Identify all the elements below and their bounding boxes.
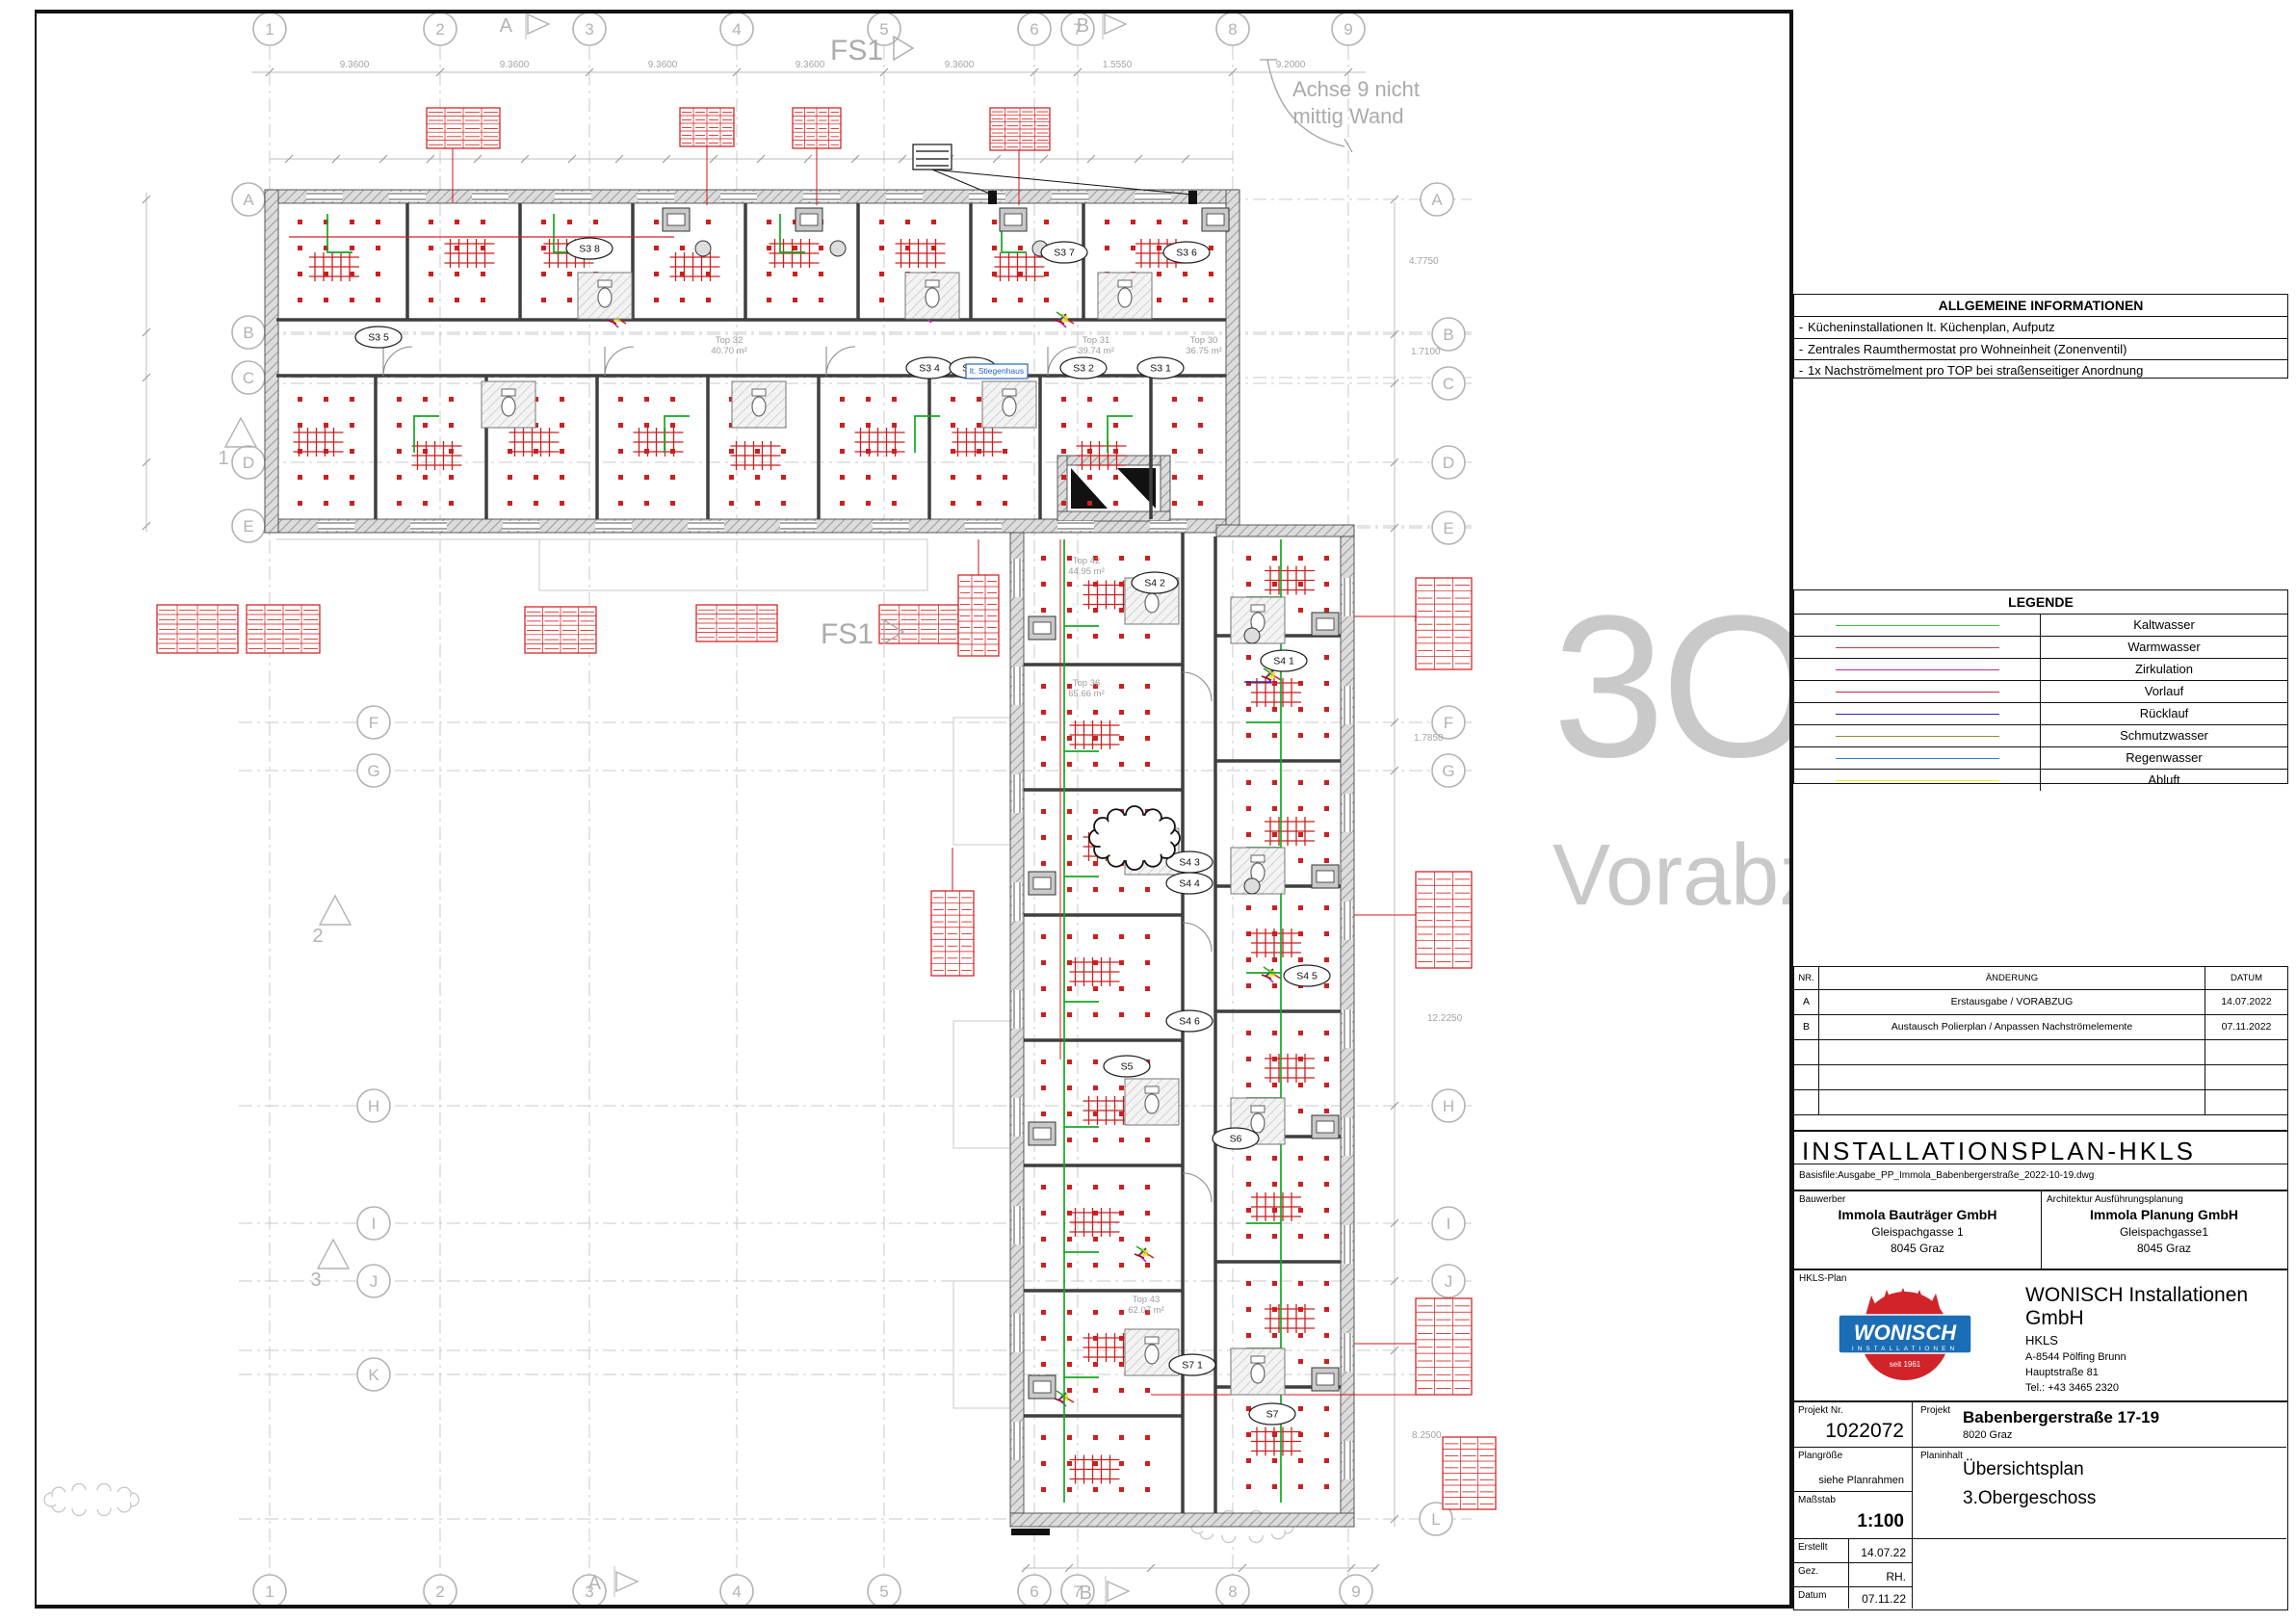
svg-text:J: J [370,1272,378,1291]
svg-text:8.2500: 8.2500 [1412,1430,1442,1441]
legend-row: Zirkulation [1794,659,2287,681]
legend-row: Regenwasser [1794,747,2287,770]
hkls-address2: Hauptstraße 81 [2025,1367,2287,1378]
general-info-box: ALLGEMEINE INFORMATIONEN -Kücheninstalla… [1793,294,2288,379]
svg-text:B: B [1077,15,1089,37]
legend-color-line [1836,780,1999,781]
svg-text:1.7100: 1.7100 [1411,347,1441,357]
revision-row [1794,1040,2287,1065]
gez-label-cell: Gez. [1794,1563,1849,1587]
bauwerber-cell: Bauwerber Immola Bauträger GmbH Gleispac… [1794,1191,2042,1269]
svg-text:D: D [243,454,254,472]
legend-label: Schmutzwasser [2041,725,2287,746]
legend-label: Warmwasser [2041,637,2287,658]
legend-title: LEGENDE [1794,590,2287,615]
svg-text:8: 8 [1228,1583,1237,1601]
svg-text:9.3600: 9.3600 [340,60,370,70]
hkls-address1: A-8544 Pölfing Brunn [2025,1351,2287,1363]
legend-label: Abluft [2041,770,2287,791]
svg-text:S7: S7 [1266,1409,1279,1421]
svg-text:A: A [243,191,254,209]
svg-text:S4 2: S4 2 [1144,578,1165,589]
hkls-company-name: WONISCH Installationen GmbH [2025,1284,2287,1330]
svg-text:S4 5: S4 5 [1296,971,1318,982]
legend-color-line [1836,736,1999,737]
svg-text:S6: S6 [1230,1134,1242,1145]
svg-text:Top 32: Top 32 [716,335,744,346]
svg-text:9.3600: 9.3600 [796,60,825,70]
massstab-value: 1:100 [1857,1511,1904,1532]
svg-text:F: F [1444,714,1453,732]
hkls-department: HKLS [2025,1333,2287,1347]
svg-text:S4 4: S4 4 [1179,878,1200,890]
revision-row: AErstausgabe / VORABZUG14.07.2022 [1794,990,2287,1015]
svg-text:A: A [1431,191,1443,209]
general-info-item: -Kücheninstallationen lt. Küchenplan, Au… [1794,317,2287,339]
legend-row: Kaltwasser [1794,615,2287,637]
legend-label: Zirkulation [2041,659,2287,680]
svg-text:S4 1: S4 1 [1273,656,1294,667]
svg-text:K: K [368,1366,379,1384]
projekt-nr-value: 1022072 [1825,1420,1904,1443]
svg-text:G: G [367,762,379,780]
legend-color-line [1836,647,1999,648]
basisfile-note: Basisfile:Ausgabe_PP_Immola_Babenbergers… [1794,1164,2287,1187]
erstellt-value-cell: 14.07.22 [1849,1539,1913,1563]
svg-text:E: E [1443,519,1453,537]
svg-text:WONISCH: WONISCH [1854,1321,1957,1345]
bauwerber-city: 8045 Graz [1794,1242,2041,1255]
svg-text:9: 9 [1351,1583,1360,1601]
plangroesse-value: siehe Planrahmen [1818,1475,1904,1486]
svg-text:S3 2: S3 2 [1073,363,1094,375]
svg-text:C: C [1443,375,1454,393]
svg-text:FS1: FS1 [821,618,874,650]
gez-value: RH. [1886,1570,1906,1583]
svg-text:S7 1: S7 1 [1182,1360,1203,1372]
svg-text:Top 36: Top 36 [1073,678,1101,689]
svg-text:G: G [1442,762,1454,780]
legend-color-line [1836,714,1999,715]
svg-text:Achse 9 nicht: Achse 9 nicht [1292,77,1420,101]
bauwerber-name: Immola Bauträger GmbH [1794,1207,2041,1222]
svg-text:I: I [1447,1215,1451,1233]
wonisch-logo-icon: WONISCH INSTALLATIONEN seit 1961 [1813,1280,1996,1388]
svg-text:1.5550: 1.5550 [1103,60,1133,70]
massstab-label: Maßstab [1794,1492,1912,1505]
revision-header-row: NR.ÄNDERUNGDATUM [1794,967,2287,990]
svg-text:9.3600: 9.3600 [945,60,975,70]
projekt-nr-cell: Projekt Nr. 1022072 [1794,1402,1913,1448]
svg-text:5: 5 [879,1583,888,1601]
svg-text:S3 8: S3 8 [579,244,600,255]
legend-row: Abluft [1794,770,2287,791]
datum-label-cell: Datum [1794,1587,1849,1609]
legend-row: Schmutzwasser [1794,725,2287,747]
legend-label: Kaltwasser [2041,615,2287,636]
svg-text:8: 8 [1228,20,1237,39]
svg-text:6: 6 [1030,1583,1038,1601]
plangroesse-label: Plangröße [1794,1448,1912,1461]
dimension-lines: 9.36009.36009.36009.36009.36001.55509.20… [143,60,1463,1572]
gez-value-cell: RH. [1849,1563,1913,1587]
planinhalt-line1: Übersichtsplan [1963,1459,2084,1480]
svg-text:INSTALLATIONEN: INSTALLATIONEN [1852,1346,1958,1352]
general-info-item: -1x Nachströmelment pro TOP bei straßens… [1794,360,2287,381]
projekt-name: Babenbergerstraße 17-19 [1963,1408,2159,1427]
legend-color-line [1836,758,1999,759]
legend-color-line [1836,625,1999,626]
general-info-item: -Zentrales Raumthermostat pro Wohneinhei… [1794,339,2287,361]
svg-text:4.7750: 4.7750 [1409,256,1439,267]
revision-row [1794,1090,2287,1115]
svg-text:65.66 m²: 65.66 m² [1068,689,1105,699]
erstellt-value: 14.07.22 [1861,1546,1906,1559]
svg-text:36.75 m²: 36.75 m² [1186,346,1222,356]
svg-text:seit 1961: seit 1961 [1890,1360,1921,1369]
legend-row: Warmwasser [1794,637,2287,659]
plan-title-box: INSTALLATIONSPLAN-HKLS Basisfile:Ausgabe… [1793,1131,2288,1190]
general-info-title: ALLGEMEINE INFORMATIONEN [1794,295,2287,317]
svg-text:Top 30: Top 30 [1190,335,1218,346]
svg-text:A: A [588,1573,602,1594]
revision-table: NR.ÄNDERUNGDATUMAErstausgabe / VORABZUG1… [1793,966,2288,1131]
annotations: FS1FS1Achse 9 nichtmittig Wand [821,35,1420,870]
svg-text:B: B [1443,326,1453,344]
projekt-nr-label: Projekt Nr. [1794,1402,1912,1416]
projekt-city: 8020 Graz [1963,1429,2012,1441]
svg-text:39.74 m²: 39.74 m² [1078,346,1114,356]
planinhalt-line2: 3.Obergeschoss [1963,1488,2096,1509]
svg-text:4: 4 [732,1583,741,1601]
parties-box: Bauwerber Immola Bauträger GmbH Gleispac… [1793,1190,2288,1269]
legend-box: LEGENDE KaltwasserWarmwasserZirkulationV… [1793,589,2288,784]
svg-text:Top 31: Top 31 [1083,335,1110,346]
svg-text:9: 9 [1344,20,1352,39]
legend-label: Rücklauf [2041,703,2287,724]
architekt-city: 8045 Graz [2042,1242,2286,1255]
svg-text:A: A [500,15,513,37]
svg-text:C: C [243,369,254,387]
svg-text:2: 2 [435,20,444,39]
svg-text:S5: S5 [1121,1061,1134,1073]
architekt-label: Architektur Ausführungsplanung [2042,1191,2286,1205]
datum-label: Datum [1794,1587,1848,1601]
svg-text:40.70 m²: 40.70 m² [711,346,747,356]
architekt-name: Immola Planung GmbH [2042,1207,2286,1222]
svg-text:S3 6: S3 6 [1176,248,1197,259]
svg-text:lt. Stiegenhaus: lt. Stiegenhaus [970,366,1024,376]
erstellt-label-cell: Erstellt [1794,1539,1849,1563]
svg-text:H: H [1443,1097,1454,1115]
svg-text:E: E [243,517,253,536]
legend-row: Vorlauf [1794,681,2287,703]
svg-text:3: 3 [585,20,593,39]
svg-text:mittig Wand: mittig Wand [1292,104,1403,128]
svg-text:2: 2 [312,926,323,947]
massstab-cell: Maßstab 1:100 [1794,1492,1913,1539]
svg-text:L: L [1431,1510,1440,1529]
title-block: ALLGEMEINE INFORMATIONEN -Kücheninstalla… [1789,10,2292,1609]
datum-value: 07.11.22 [1862,1592,1906,1606]
erstellt-label: Erstellt [1794,1539,1848,1553]
svg-text:9.2000: 9.2000 [1276,60,1306,70]
gez-label: Gez. [1794,1563,1848,1577]
svg-text:Top 42: Top 42 [1073,556,1101,566]
project-info-box: Projekt Nr. 1022072 Plangröße siehe Plan… [1793,1401,2288,1610]
legend-color-line [1836,669,1999,670]
drawing-sheet: 123456789123456789ABCDEFGHIJKABCDEFGHIJK… [0,0,2296,1622]
svg-text:6: 6 [1030,20,1038,39]
svg-text:B: B [1080,1583,1092,1604]
svg-text:1: 1 [218,448,228,469]
legend-color-line [1836,692,1999,693]
hkls-phone: Tel.: +43 3465 2320 [2025,1382,2287,1394]
planinhalt-cell: Planinhalt Übersichtsplan 3.Obergeschoss [1913,1448,2286,1539]
svg-text:2: 2 [435,1583,444,1601]
svg-text:4: 4 [732,20,741,39]
svg-text:1.7850: 1.7850 [1414,733,1444,744]
svg-text:S3 7: S3 7 [1054,248,1075,259]
svg-text:I: I [372,1215,377,1233]
legend-label: Regenwasser [2041,747,2287,769]
svg-text:44.95 m²: 44.95 m² [1068,566,1105,577]
plan-title: INSTALLATIONSPLAN-HKLS [1794,1132,2287,1164]
svg-text:9.3600: 9.3600 [500,60,530,70]
svg-text:1: 1 [265,20,274,39]
svg-text:3: 3 [310,1269,321,1291]
svg-text:12.2250: 12.2250 [1427,1013,1463,1024]
plangroesse-cell: Plangröße siehe Planrahmen [1794,1448,1913,1492]
revision-row [1794,1065,2287,1090]
fixtures [482,208,1339,1399]
svg-text:S4 3: S4 3 [1179,857,1200,869]
svg-text:FS1: FS1 [830,35,883,66]
svg-text:B: B [243,324,253,342]
projekt-cell: Projekt Babenbergerstraße 17-19 8020 Gra… [1913,1402,2286,1448]
svg-text:Top 43: Top 43 [1133,1295,1161,1305]
svg-text:62.07 m²: 62.07 m² [1128,1305,1164,1316]
legend-label: Vorlauf [2041,681,2287,702]
bauwerber-street: Gleispachgasse 1 [1794,1225,2041,1239]
architekt-cell: Architektur Ausführungsplanung Immola Pl… [2042,1191,2286,1269]
revision-row: BAustausch Polierplan / Anpassen Nachstr… [1794,1015,2287,1040]
bauwerber-label: Bauwerber [1794,1191,2041,1205]
svg-text:1: 1 [265,1583,274,1601]
hkls-company-box: HKLS-Plan WONISCH INSTALLATIONEN seit 19… [1793,1269,2288,1401]
svg-text:9.3600: 9.3600 [648,60,678,70]
datum-value-cell: 07.11.22 [1849,1587,1913,1609]
svg-text:D: D [1443,454,1454,472]
svg-text:S4 6: S4 6 [1179,1016,1200,1028]
legend-row: Rücklauf [1794,703,2287,725]
architekt-street: Gleispachgasse1 [2042,1225,2286,1239]
wonisch-logo: WONISCH INSTALLATIONEN seit 1961 [1813,1280,1996,1388]
svg-text:H: H [368,1097,379,1115]
svg-text:S3 4: S3 4 [919,363,940,375]
svg-text:J: J [1445,1272,1453,1291]
svg-text:F: F [369,714,378,732]
svg-text:S3 1: S3 1 [1150,363,1171,375]
svg-text:S3 5: S3 5 [368,332,389,344]
